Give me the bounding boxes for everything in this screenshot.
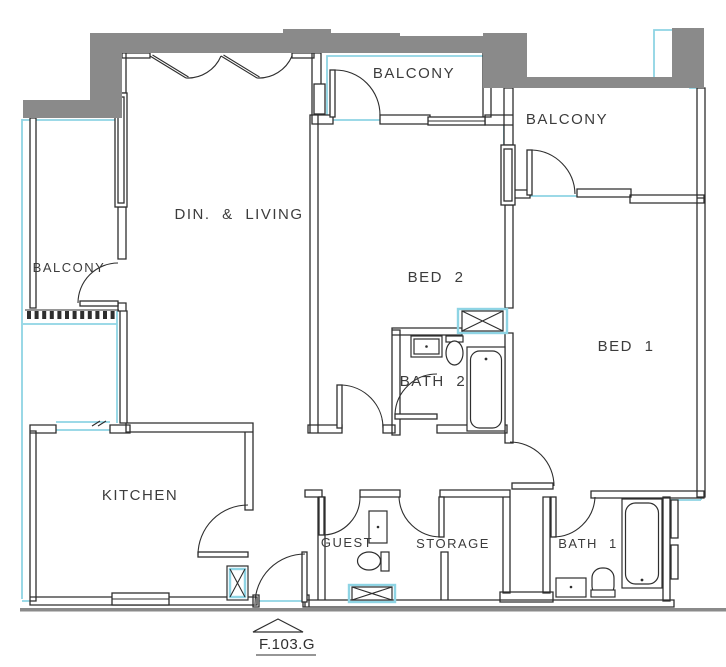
floor-plan-page: BALCONY DIN. & LIVING BALCONY BALCONY BE… [0, 0, 726, 667]
door-bath-1 [551, 497, 595, 537]
room-label-kitchen: KITCHEN [102, 487, 178, 504]
bathtub-bath-1 [622, 499, 662, 588]
unit-label: F.103.G [259, 636, 315, 653]
door-balcony-right [527, 150, 575, 195]
window-bed2-east [501, 145, 515, 205]
door-storage [399, 497, 444, 537]
toilet-bath-2 [446, 336, 463, 365]
shaft-kitchen [227, 566, 248, 600]
door-entrance [255, 552, 307, 604]
window-balcony-top-sill [428, 117, 485, 125]
room-label-balcony-left: BALCONY [33, 260, 106, 275]
room-label-bath-1: BATH 1 [558, 536, 618, 551]
floor-plan-svg: BALCONY DIN. & LIVING BALCONY BALCONY BE… [0, 0, 726, 667]
room-label-balcony-top: BALCONY [373, 65, 455, 82]
door-bed-1 [510, 442, 554, 489]
room-label-bed-1: BED 1 [598, 338, 655, 355]
room-label-guest: GUEST [321, 535, 373, 550]
shaft-bath-2 [458, 309, 507, 333]
door-bed-2 [337, 385, 383, 428]
walls-layer [30, 53, 705, 607]
room-label-balcony-right: BALCONY [526, 111, 608, 128]
bifold-door [150, 55, 292, 78]
room-label-bath-2: BATH 2 [400, 373, 466, 390]
shaft-guest [349, 585, 395, 602]
room-label-dining-living: DIN. & LIVING [174, 206, 303, 223]
window-kitchen-south [112, 593, 169, 605]
balcony-railing [25, 310, 119, 319]
toilet-bath-1 [591, 568, 615, 597]
sink-bath-2 [411, 336, 442, 357]
bathtub-bath-2 [467, 347, 505, 431]
room-label-storage: STORAGE [416, 536, 490, 551]
sink-bath-1 [556, 578, 586, 597]
door-kitchen [198, 505, 248, 557]
window-balcony-top-west [314, 84, 325, 114]
room-label-bed-2: BED 2 [408, 269, 465, 286]
toilet-guest [358, 552, 390, 571]
